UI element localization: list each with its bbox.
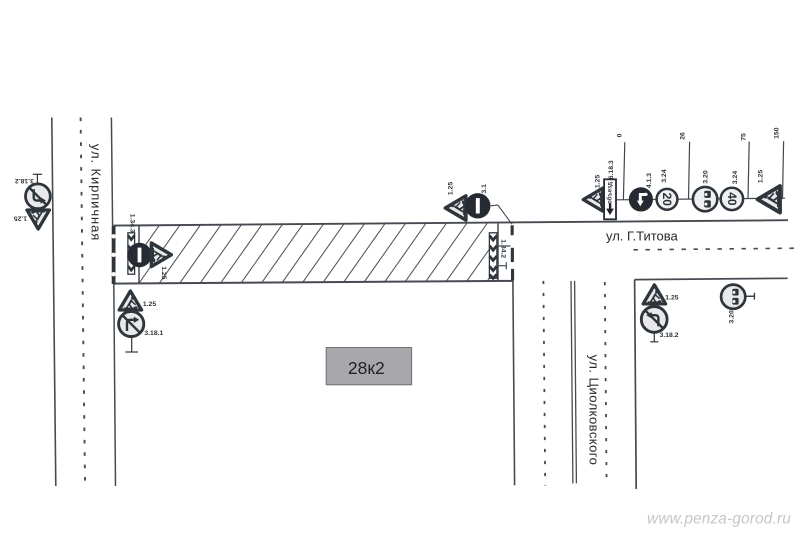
svg-text:www.penza-gorod.ru: www.penza-gorod.ru (647, 511, 791, 528)
svg-text:1.25: 1.25 (665, 295, 678, 302)
svg-text:ул. Кирпичная: ул. Кирпичная (89, 144, 104, 241)
svg-text:28к2: 28к2 (348, 358, 385, 378)
svg-text:0: 0 (616, 133, 623, 137)
svg-text:3.24: 3.24 (732, 171, 739, 184)
svg-text:3.1: 3.1 (481, 184, 488, 194)
svg-text:1.25: 1.25 (594, 175, 601, 188)
svg-text:20: 20 (660, 193, 674, 207)
svg-text:3.20: 3.20 (703, 170, 710, 183)
svg-text:3.24: 3.24 (661, 169, 668, 182)
svg-text:объезд: объезд (606, 182, 613, 204)
svg-text:3.18.2: 3.18.2 (15, 177, 34, 184)
svg-text:1.25: 1.25 (143, 301, 156, 308)
svg-text:1.34.3: 1.34.3 (129, 214, 136, 233)
svg-text:1.25: 1.25 (448, 182, 455, 195)
svg-text:1.25: 1.25 (14, 214, 27, 221)
svg-text:ул. Г.Титова: ул. Г.Титова (606, 229, 679, 244)
svg-text:3.20: 3.20 (729, 310, 736, 323)
svg-text:26: 26 (680, 132, 687, 140)
svg-text:4.1.3: 4.1.3 (646, 173, 653, 188)
svg-text:1.25: 1.25 (758, 170, 765, 183)
svg-text:6.18.3: 6.18.3 (608, 160, 615, 179)
svg-text:3.18.1: 3.18.1 (144, 330, 163, 337)
svg-text:1.34.2: 1.34.2 (500, 239, 507, 258)
svg-text:1.25: 1.25 (160, 266, 167, 279)
svg-text:ул. Циолковского: ул. Циолковского (587, 355, 602, 466)
svg-text:3.18.2: 3.18.2 (660, 332, 679, 339)
svg-text:40: 40 (725, 192, 739, 206)
svg-text:150: 150 (774, 127, 781, 139)
svg-text:75: 75 (741, 133, 748, 141)
